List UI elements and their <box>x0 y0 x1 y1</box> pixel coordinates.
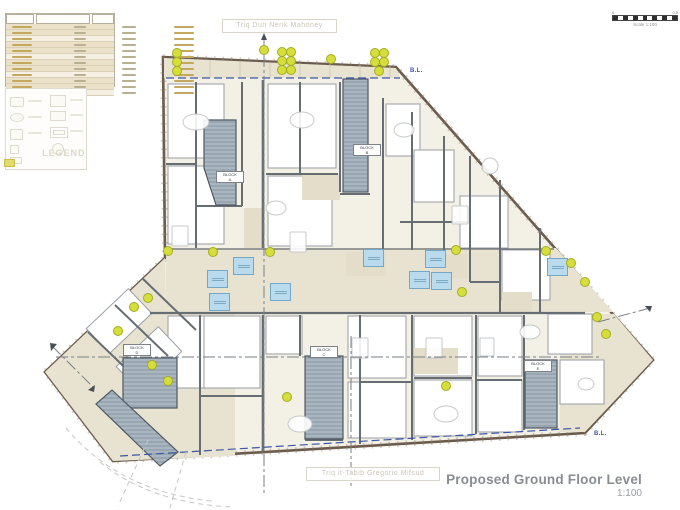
shaft-text-stub <box>552 268 564 269</box>
schedule-cell-stub <box>12 50 32 52</box>
legend-label-stub <box>28 132 42 134</box>
planter-dot <box>143 293 153 303</box>
schedule-cell-stub <box>122 74 136 76</box>
block-b-label: BLOCKB <box>353 144 381 156</box>
schedule-cell-stub <box>74 26 86 28</box>
planter-dot <box>282 392 292 402</box>
block-letter: A <box>217 177 243 182</box>
shaft-text-stub <box>430 258 442 259</box>
schedule-cell-stub <box>74 80 86 82</box>
legend-label-stub <box>70 114 83 116</box>
planter-dot <box>566 258 576 268</box>
legend-symbol <box>50 127 68 138</box>
schedule-cell-stub <box>74 32 86 34</box>
scale-bar-cells <box>612 15 678 21</box>
scale-bar-caption: Scale 1:100 <box>612 22 678 27</box>
shaft-text-stub <box>214 301 226 302</box>
shaft-text-stub <box>214 303 226 304</box>
block-d-label: BLOCKD <box>123 344 151 356</box>
scale-bar-zero: 0 <box>612 10 614 15</box>
legend-label-stub <box>70 99 83 101</box>
legend-label-stub <box>28 100 42 102</box>
drawing-scale: 1:100 <box>617 488 642 499</box>
schedule-cell-stub <box>12 74 32 76</box>
shaft-marker <box>425 250 446 268</box>
shaft-marker <box>409 271 430 289</box>
legend-yellow-mark <box>4 159 15 167</box>
schedule-cell-stub <box>12 68 32 70</box>
shaft-marker <box>363 249 384 267</box>
shaft-text-stub <box>238 267 250 268</box>
block-letter: B <box>354 150 380 155</box>
shaft-marker <box>431 272 452 290</box>
drawing-sheet: { "document": { "title": "Proposed Groun… <box>0 0 680 510</box>
schedule-cell-stub <box>74 74 86 76</box>
planter-dot <box>451 245 461 255</box>
planter-dot <box>286 65 296 75</box>
schedule-cell-stub <box>12 80 32 82</box>
schedule-cell-stub <box>174 80 194 82</box>
planter-dot <box>457 287 467 297</box>
planter-dot <box>265 247 275 257</box>
planter-dot <box>326 54 336 64</box>
shaft-marker <box>547 258 568 276</box>
planter-dot <box>208 247 218 257</box>
shaft-marker <box>233 257 254 275</box>
shaft-text-stub <box>436 280 448 281</box>
schedule-header-cell <box>92 14 114 24</box>
scale-bar: 0 0.5 Scale 1:100 <box>612 10 678 27</box>
schedule-cell-stub <box>174 26 194 28</box>
schedule-cell-stub <box>174 32 194 34</box>
planter-dot <box>259 45 269 55</box>
schedule-cell-stub <box>122 56 136 58</box>
legend-symbol <box>10 129 23 140</box>
schedule-cell-stub <box>122 26 136 28</box>
planter-dot <box>129 302 139 312</box>
block-c-label: BLOCKC <box>310 346 338 358</box>
schedule-cell-stub <box>74 44 86 46</box>
area-schedule-rows <box>6 24 114 96</box>
shaft-text-stub <box>368 259 380 260</box>
schedule-cell-stub <box>74 56 86 58</box>
schedule-cell-stub <box>12 32 32 34</box>
scale-bar-segment <box>672 16 677 20</box>
schedule-cell-stub <box>74 50 86 52</box>
schedule-cell-stub <box>122 32 136 34</box>
planter-dot <box>592 312 602 322</box>
schedule-cell-stub <box>174 86 194 88</box>
area-schedule-table <box>5 13 115 87</box>
planter-dot <box>374 66 384 76</box>
shaft-text-stub <box>368 257 380 258</box>
building-line-label-bottom: B.L. <box>594 431 607 437</box>
shaft-marker <box>207 270 228 288</box>
block-e-label: BLOCKE <box>524 360 552 372</box>
legend-label-stub <box>28 116 42 118</box>
shaft-text-stub <box>275 293 287 294</box>
planter-dot <box>147 360 157 370</box>
shaft-text-stub <box>552 266 564 267</box>
planter-dot <box>163 246 173 256</box>
shaft-text-stub <box>238 265 250 266</box>
legend-symbol <box>10 97 24 107</box>
block-letter: E <box>525 366 551 371</box>
planter-dot <box>541 246 551 256</box>
shaft-text-stub <box>212 280 224 281</box>
shaft-text-stub <box>430 260 442 261</box>
shaft-marker <box>209 293 230 311</box>
area-schedule-header <box>6 14 114 24</box>
legend-symbol <box>10 113 24 122</box>
schedule-cell-stub <box>174 92 194 94</box>
schedule-cell-stub <box>122 62 136 64</box>
schedule-cell-stub <box>122 80 136 82</box>
planter-dot <box>163 376 173 386</box>
building-line-label-top: B.L. <box>410 68 423 74</box>
legend-symbol <box>50 95 66 107</box>
planter-dot <box>172 66 182 76</box>
shaft-text-stub <box>414 279 426 280</box>
schedule-cell-stub <box>74 38 86 40</box>
schedule-cell-stub <box>122 50 136 52</box>
schedule-cell-stub <box>12 26 32 28</box>
block-letter: D <box>124 350 150 355</box>
shaft-text-stub <box>212 278 224 279</box>
schedule-header-cell <box>6 14 34 24</box>
planter-dot <box>580 277 590 287</box>
planter-dot <box>441 381 451 391</box>
drawing-title: Proposed Ground Floor Level <box>446 472 642 487</box>
shaft-marker <box>270 283 291 301</box>
shaft-text-stub <box>414 281 426 282</box>
legend-symbol <box>50 111 66 121</box>
street-name-bottom: Triq it-Tabib Gregorio Mifsud <box>306 467 440 481</box>
legend-box: LEGEND <box>5 88 87 170</box>
block-a-label: BLOCKA <box>216 171 244 183</box>
schedule-header-cell <box>36 14 90 24</box>
street-name-top: Triq Dun Nerik Mahoney <box>222 19 337 33</box>
legend-label-stub <box>70 130 83 132</box>
scale-bar-end: 0.5 <box>672 10 678 15</box>
shaft-text-stub <box>436 282 448 283</box>
schedule-cell-stub <box>12 56 32 58</box>
schedule-cell-stub <box>122 68 136 70</box>
schedule-cell-stub <box>122 86 136 88</box>
schedule-cell-stub <box>122 92 136 94</box>
schedule-cell-stub <box>74 68 86 70</box>
block-letter: C <box>311 352 337 357</box>
planter-dot <box>113 326 123 336</box>
schedule-cell-stub <box>12 38 32 40</box>
legend-symbol <box>10 145 19 154</box>
schedule-cell-stub <box>122 38 136 40</box>
schedule-cell-stub <box>122 44 136 46</box>
planter-dot <box>601 329 611 339</box>
schedule-cell-stub <box>174 44 194 46</box>
schedule-cell-stub <box>12 62 32 64</box>
shaft-text-stub <box>275 291 287 292</box>
schedule-cell-stub <box>74 62 86 64</box>
schedule-cell-stub <box>174 38 194 40</box>
legend-title: LEGEND <box>42 148 86 158</box>
schedule-cell-stub <box>12 44 32 46</box>
